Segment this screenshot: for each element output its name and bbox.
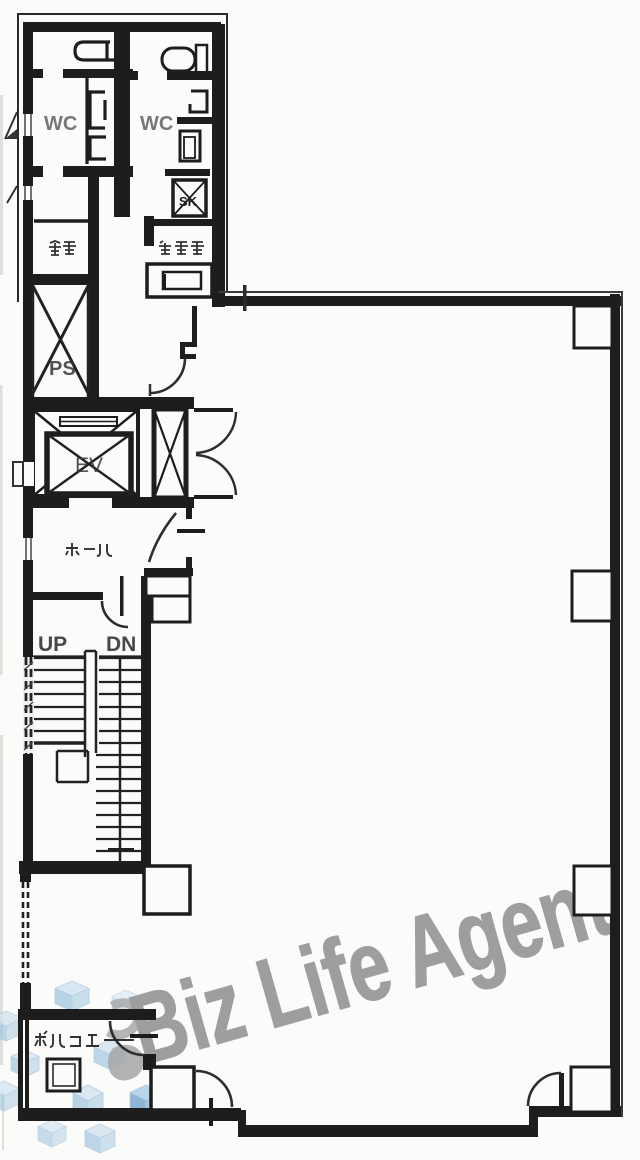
svg-text:PS: PS xyxy=(49,358,76,380)
svg-text:EV: EV xyxy=(75,454,103,477)
svg-text:WC: WC xyxy=(44,113,77,135)
svg-text:WC: WC xyxy=(140,113,173,135)
svg-text:UP: UP xyxy=(38,633,67,656)
svg-text:DN: DN xyxy=(106,633,136,656)
svg-text:SK: SK xyxy=(179,194,198,209)
